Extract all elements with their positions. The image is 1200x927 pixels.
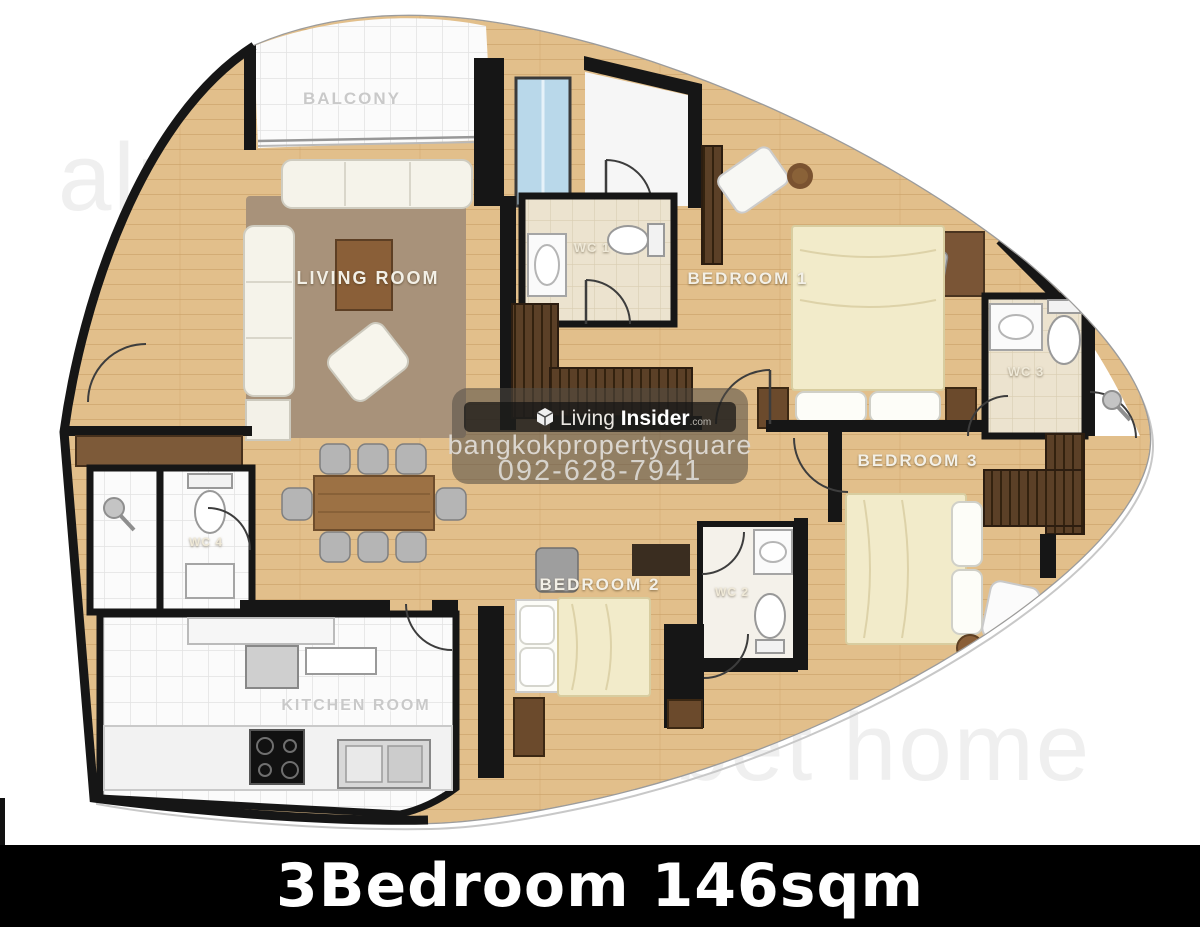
cabinet-icon — [632, 544, 690, 576]
room-label-bedroom3: BEDROOM 3 — [858, 451, 979, 470]
toilet-icon — [1048, 316, 1080, 364]
dining-chair-icon — [396, 444, 426, 474]
wardrobe-icon — [702, 146, 722, 264]
shower-icon — [1103, 391, 1121, 409]
room-living — [244, 160, 472, 440]
room-label-balcony: BALCONY — [303, 89, 401, 108]
shower-icon — [104, 498, 124, 518]
room-shower — [90, 468, 162, 612]
sideboard-icon — [76, 436, 242, 466]
dining-chair-icon — [358, 444, 388, 474]
bed-icon — [846, 494, 966, 644]
toilet-icon — [755, 594, 785, 638]
dining-chair-icon — [396, 532, 426, 562]
wall — [794, 518, 808, 670]
dining-chair-icon — [436, 488, 466, 520]
room-label-bedroom2: BEDROOM 2 — [540, 575, 661, 594]
wall — [474, 58, 504, 206]
room-label-wc1: WC 1 — [574, 240, 611, 255]
room-balcony — [244, 18, 492, 150]
toilet-icon — [608, 226, 648, 254]
wall — [60, 426, 252, 436]
nightstand-icon — [514, 698, 544, 756]
island-icon — [306, 648, 376, 674]
room-label-kitchen: KITCHEN ROOM — [281, 697, 430, 714]
side-table-icon — [246, 400, 290, 440]
cabinet-icon — [668, 700, 702, 728]
wardrobe-icon — [984, 470, 1084, 526]
pillow-icon — [520, 606, 554, 644]
dining-chair-icon — [320, 444, 350, 474]
image-border-artifact — [0, 798, 5, 845]
room-label-wc2: WC 2 — [715, 585, 749, 599]
sofa-icon — [282, 160, 472, 208]
pillow-icon — [870, 392, 940, 422]
sink-icon — [186, 564, 234, 598]
room-label-bedroom1: BEDROOM 1 — [688, 269, 809, 288]
watermark-brand: Living Insider.com — [560, 407, 711, 430]
bed-icon — [792, 226, 944, 390]
floorplan-page: alphabet home alphabet home — [0, 0, 1200, 927]
banner: 3Bedroom 146sqm — [0, 845, 1200, 927]
toilet-icon — [195, 491, 225, 533]
dining-chair-icon — [282, 488, 312, 520]
wall — [688, 90, 702, 208]
watermark-phone: 092-628-7941 — [498, 455, 703, 487]
pillow-icon — [952, 502, 982, 566]
banner-title: 3Bedroom 146sqm — [276, 851, 924, 921]
room-label-wc3: WC 3 — [1008, 364, 1045, 379]
dining-table-icon — [314, 476, 434, 530]
watermark-panel: Living Insider.com bangkokpropertysquare… — [448, 388, 753, 487]
wall — [828, 432, 842, 522]
floorplan-drawing: alphabet home alphabet home — [0, 0, 1200, 927]
armchair-icon — [981, 579, 1042, 646]
wall — [478, 606, 504, 778]
pillow-icon — [520, 648, 554, 686]
counter-icon — [188, 618, 334, 644]
sofa-icon — [244, 226, 294, 396]
dining-chair-icon — [358, 532, 388, 562]
room-label-living: LIVING ROOM — [297, 268, 440, 288]
wall — [240, 600, 390, 612]
room-label-wc4: WC 4 — [189, 535, 223, 549]
wall — [700, 658, 798, 672]
pillow-icon — [796, 392, 866, 422]
wall — [244, 42, 256, 150]
bed-duvet — [558, 598, 650, 696]
fridge-icon — [246, 646, 298, 688]
wall — [432, 600, 458, 612]
dining-chair-icon — [320, 532, 350, 562]
wall — [766, 420, 988, 432]
pillow-icon — [952, 570, 982, 634]
wall — [1040, 534, 1056, 578]
